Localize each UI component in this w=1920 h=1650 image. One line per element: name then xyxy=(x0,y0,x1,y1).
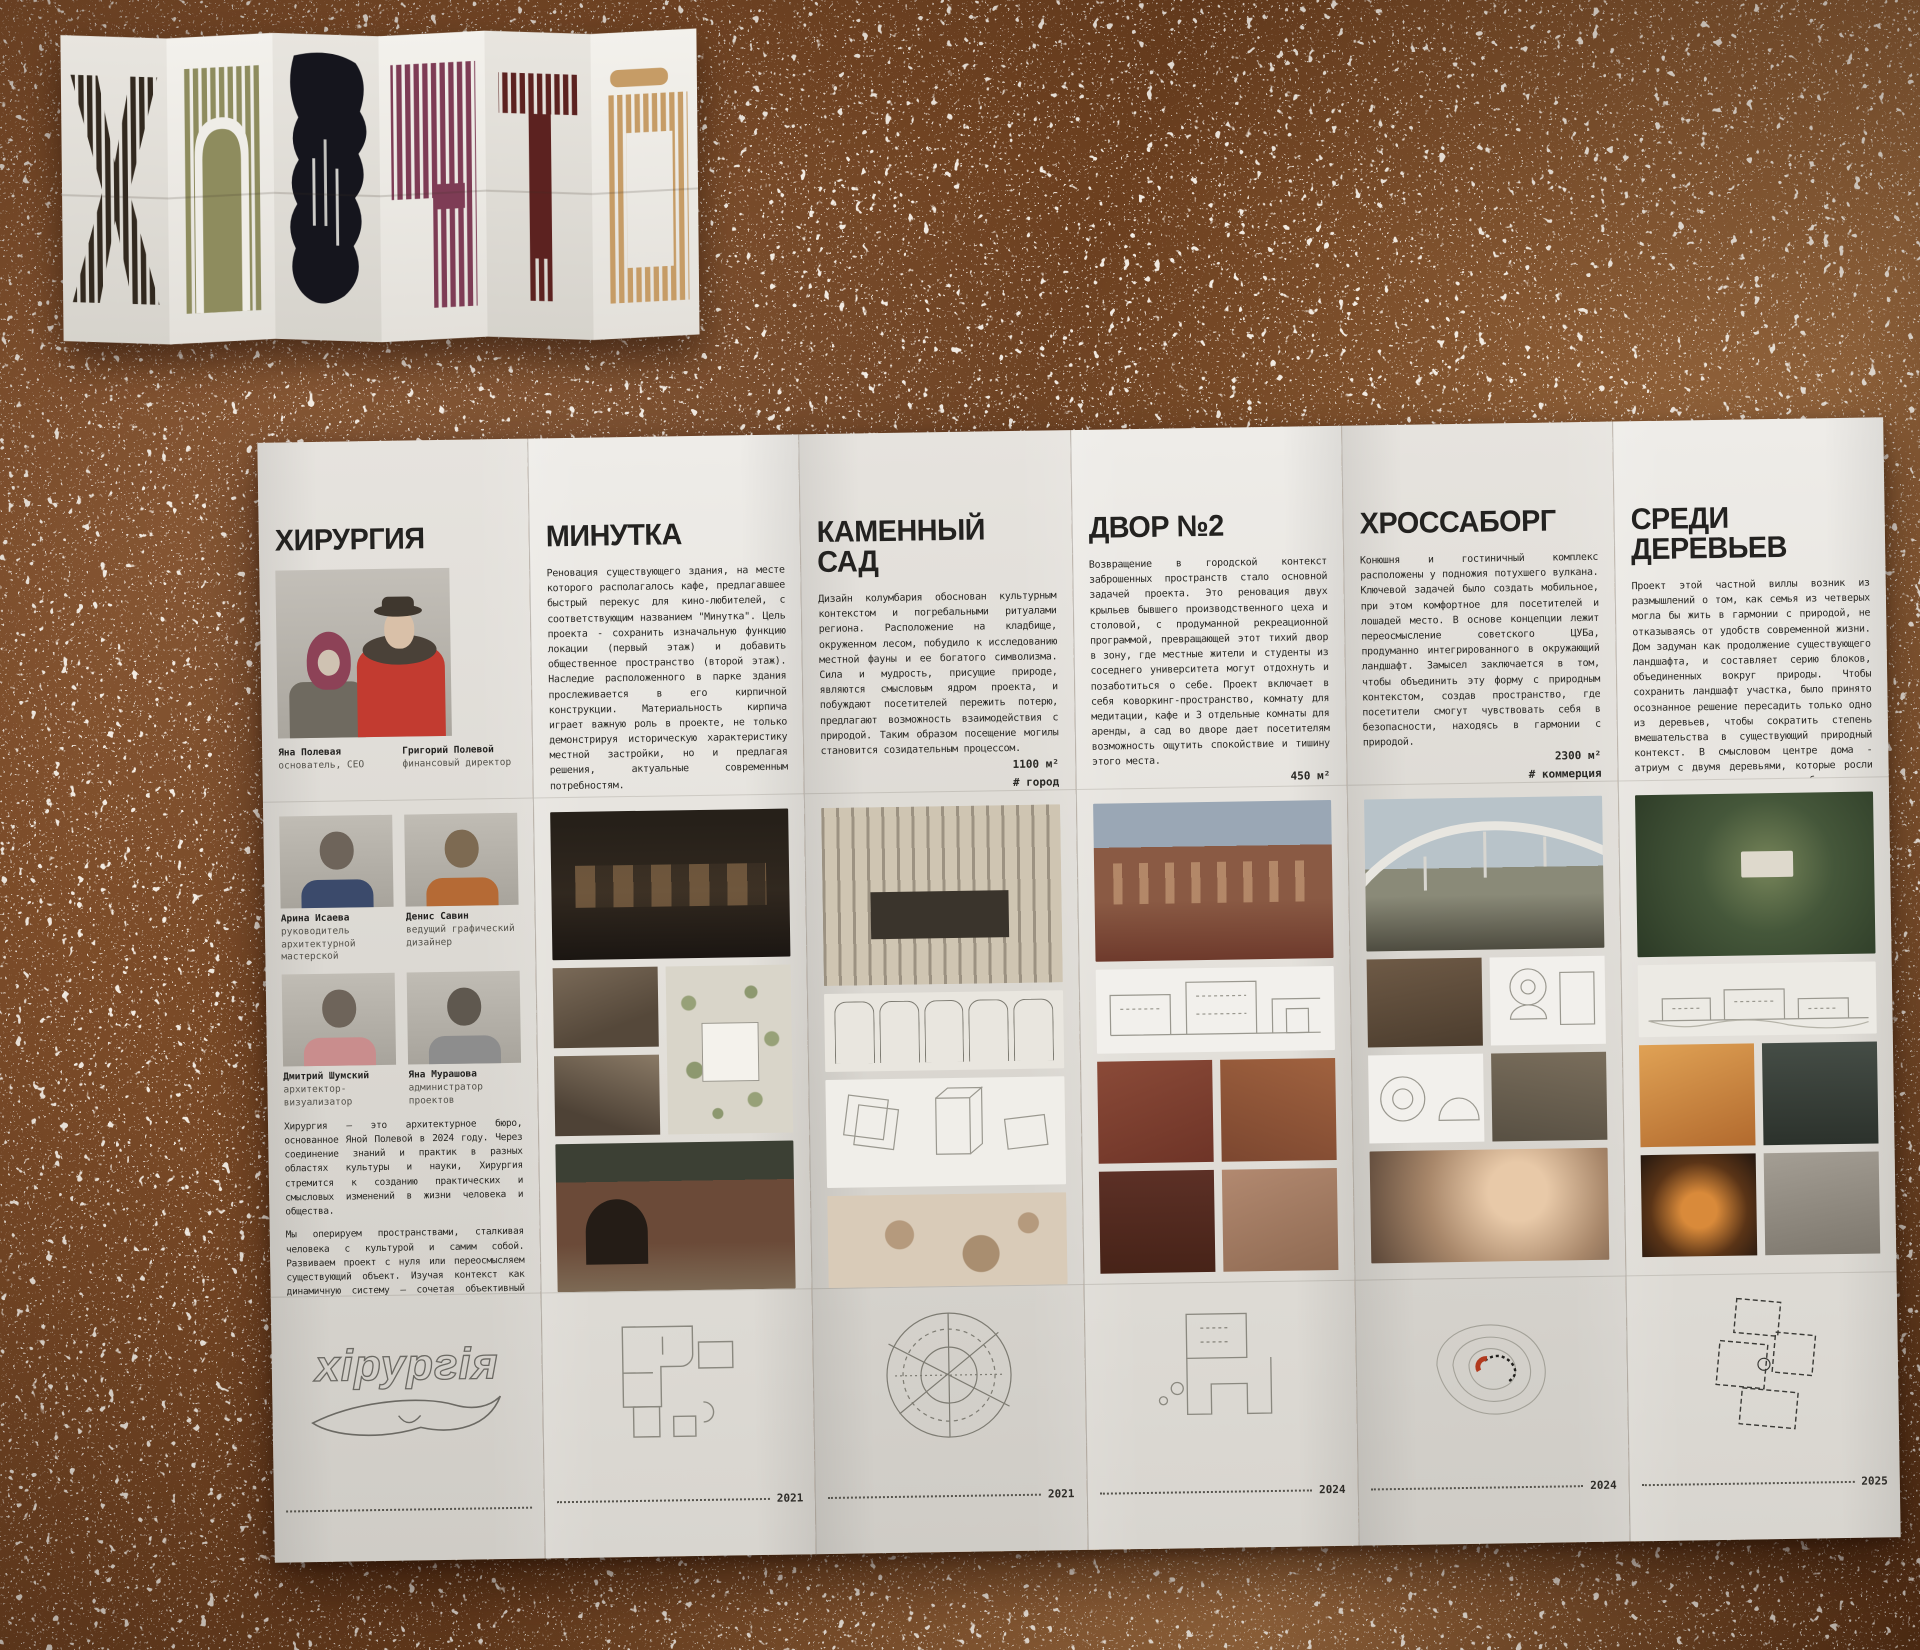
fireplace-lounge-render xyxy=(1369,1148,1609,1264)
niche-elevation-drawing xyxy=(824,990,1063,1072)
brochure-panel-stone-garden: КАМЕННЫЙ САД Дизайн колумбария обоснован… xyxy=(799,430,1088,1554)
studio-about-text: Хирургия — это архитектурное бюро, основ… xyxy=(284,1116,527,1297)
founder-role: финансовый директор xyxy=(402,756,516,771)
area-label: 450 м² xyxy=(1290,769,1330,783)
garden-plan-sketch xyxy=(828,1192,1068,1289)
frame-letter-print-art xyxy=(590,28,699,340)
floor-plan-drawing xyxy=(1140,1303,1302,1445)
red-interior-photo xyxy=(1220,1058,1337,1162)
project-title: СРЕДИ ДЕРЕВЬЕВ xyxy=(1630,502,1860,566)
courtyard-photo xyxy=(1097,1060,1214,1164)
step-letter-print-art xyxy=(378,31,487,343)
timeline-rule: 2024 xyxy=(1370,1479,1616,1496)
project-description: Проект этой частной виллы возник из разм… xyxy=(1631,576,1873,782)
team-grid: Арина Исаева руководитель архитектурной … xyxy=(279,813,522,1110)
photo-scene: ХИРУРГИЯ Яна Полевая основатель, CEO xyxy=(0,0,1920,1650)
sunset-interior-photo xyxy=(1639,1043,1756,1147)
brochure-panel-minutka: МИНУТКА Реновация существующего здания, … xyxy=(527,434,816,1558)
team-member: Яна Мурашова администратор проектов xyxy=(407,971,522,1108)
year-label: 2025 xyxy=(1861,1474,1888,1487)
logo-wordmark: хірургія xyxy=(315,1344,499,1386)
accordion-panel xyxy=(272,33,381,342)
timeline-rule: 2021 xyxy=(557,1491,803,1508)
contour-site-plan xyxy=(1406,1293,1578,1446)
project-description: Возвращение в городской контекст заброше… xyxy=(1089,554,1330,770)
team-member: Денис Савин ведущий графический дизайнер xyxy=(404,813,519,963)
brick-detail-render xyxy=(553,967,659,1049)
team-member: Дмитрий Шумский архитектор-визуализатор xyxy=(282,973,397,1110)
meditation-room-photo xyxy=(1098,1170,1215,1274)
brochure-panel-yard-2: ДВОР №2 Возвращение в городской контекст… xyxy=(1070,426,1359,1550)
brick-house-photo xyxy=(556,1141,796,1293)
year-label: 2024 xyxy=(1319,1483,1346,1496)
team-member-photo xyxy=(407,971,522,1065)
axonometric-drawings xyxy=(826,1076,1066,1188)
founder-role: основатель, CEO xyxy=(278,758,392,773)
aerial-forest-photo xyxy=(1635,792,1876,958)
accordion-booklet xyxy=(60,31,699,344)
interior-photo xyxy=(1764,1151,1881,1255)
atrium-tree-night-photo xyxy=(1641,1153,1758,1257)
accordion-panel xyxy=(60,35,169,344)
arch-letter-print-art xyxy=(166,33,275,345)
cafe-interior-photo xyxy=(1221,1168,1338,1272)
brick-balcony-render xyxy=(554,1055,660,1137)
villa-photo-collage xyxy=(1639,1041,1880,1257)
timeline-rule xyxy=(286,1507,532,1513)
courtyard-dusk-photo xyxy=(1093,800,1334,962)
team-member-photo xyxy=(282,973,397,1067)
elevation-drawing xyxy=(1638,961,1877,1037)
team-member-photo xyxy=(404,813,519,907)
site-plan-drawing xyxy=(666,965,794,1135)
accordion-panel xyxy=(166,33,275,345)
timeline-rule: 2021 xyxy=(828,1487,1074,1504)
accordion-panel xyxy=(484,31,593,340)
brochure-panel-hrossaborg: ХРОССАБОРГ Конюшня и гостиничный комплек… xyxy=(1341,422,1630,1546)
project-description: Реновация существующего здания, на месте… xyxy=(546,563,788,795)
project-title: МИНУТКА xyxy=(546,519,775,553)
x-letter-print-art xyxy=(60,35,169,344)
timeline-rule: 2024 xyxy=(1099,1483,1345,1500)
project-title: ДВОР №2 xyxy=(1088,510,1317,544)
ink-blob-print-art xyxy=(272,33,381,342)
project-title: ХРОССАБОРГ xyxy=(1359,506,1588,540)
project-description: Конюшня и гостиничный комплекс расположе… xyxy=(1360,550,1601,751)
night-facade-render xyxy=(550,809,790,961)
timeline-rule: 2025 xyxy=(1642,1474,1888,1491)
accordion-panel xyxy=(378,31,487,343)
interior-photo-collage xyxy=(1097,1058,1338,1274)
brochure-panel-studio: ХИРУРГИЯ Яна Полевая основатель, CEO xyxy=(257,439,545,1563)
project-description: Дизайн колумбария обоснован культурным к… xyxy=(818,588,1059,759)
logo-block: хірургія xyxy=(288,1344,528,1451)
year-label: 2021 xyxy=(777,1491,804,1504)
dome-section-drawing xyxy=(1368,1054,1484,1144)
accordion-panel xyxy=(590,28,699,340)
logo-swoosh xyxy=(302,1384,513,1451)
brochure-panel-among-trees: СРЕДИ ДЕРЕВЬЕВ Проект этой частной виллы… xyxy=(1612,417,1901,1541)
bridge-landscape-photo xyxy=(1364,796,1605,952)
dashed-floor-plan xyxy=(1677,1289,1849,1442)
section-drawing xyxy=(1095,966,1334,1054)
team-member: Арина Исаева руководитель архитектурной … xyxy=(279,815,394,965)
project-title: КАМЕННЫЙ САД xyxy=(817,514,1047,578)
t-letter-print-art xyxy=(484,31,593,340)
circular-plan-drawing xyxy=(868,1302,1030,1454)
area-label: 2300 м² xyxy=(1555,749,1602,763)
year-label: 2021 xyxy=(1048,1487,1075,1500)
greenhouse-photo xyxy=(1491,1052,1607,1142)
area-label: 1100 м² xyxy=(1013,757,1060,771)
team-member-photo xyxy=(279,815,394,909)
year-label: 2024 xyxy=(1590,1479,1617,1492)
glass-facade-photo xyxy=(1762,1041,1879,1145)
stable-interior-photo xyxy=(1366,958,1482,1048)
round-pavilion-drawing xyxy=(1489,956,1605,1046)
brochure-sheet: ХИРУРГИЯ Яна Полевая основатель, CEO xyxy=(257,417,1900,1562)
founders-names: Яна Полевая основатель, CEO Григорий Пол… xyxy=(278,743,517,773)
columbarium-forest-render xyxy=(821,804,1062,986)
floor-plan-drawing xyxy=(602,1311,754,1453)
founder-figure xyxy=(289,681,366,738)
page-title: ХИРУРГИЯ xyxy=(275,523,504,557)
founders-photo xyxy=(275,568,452,739)
